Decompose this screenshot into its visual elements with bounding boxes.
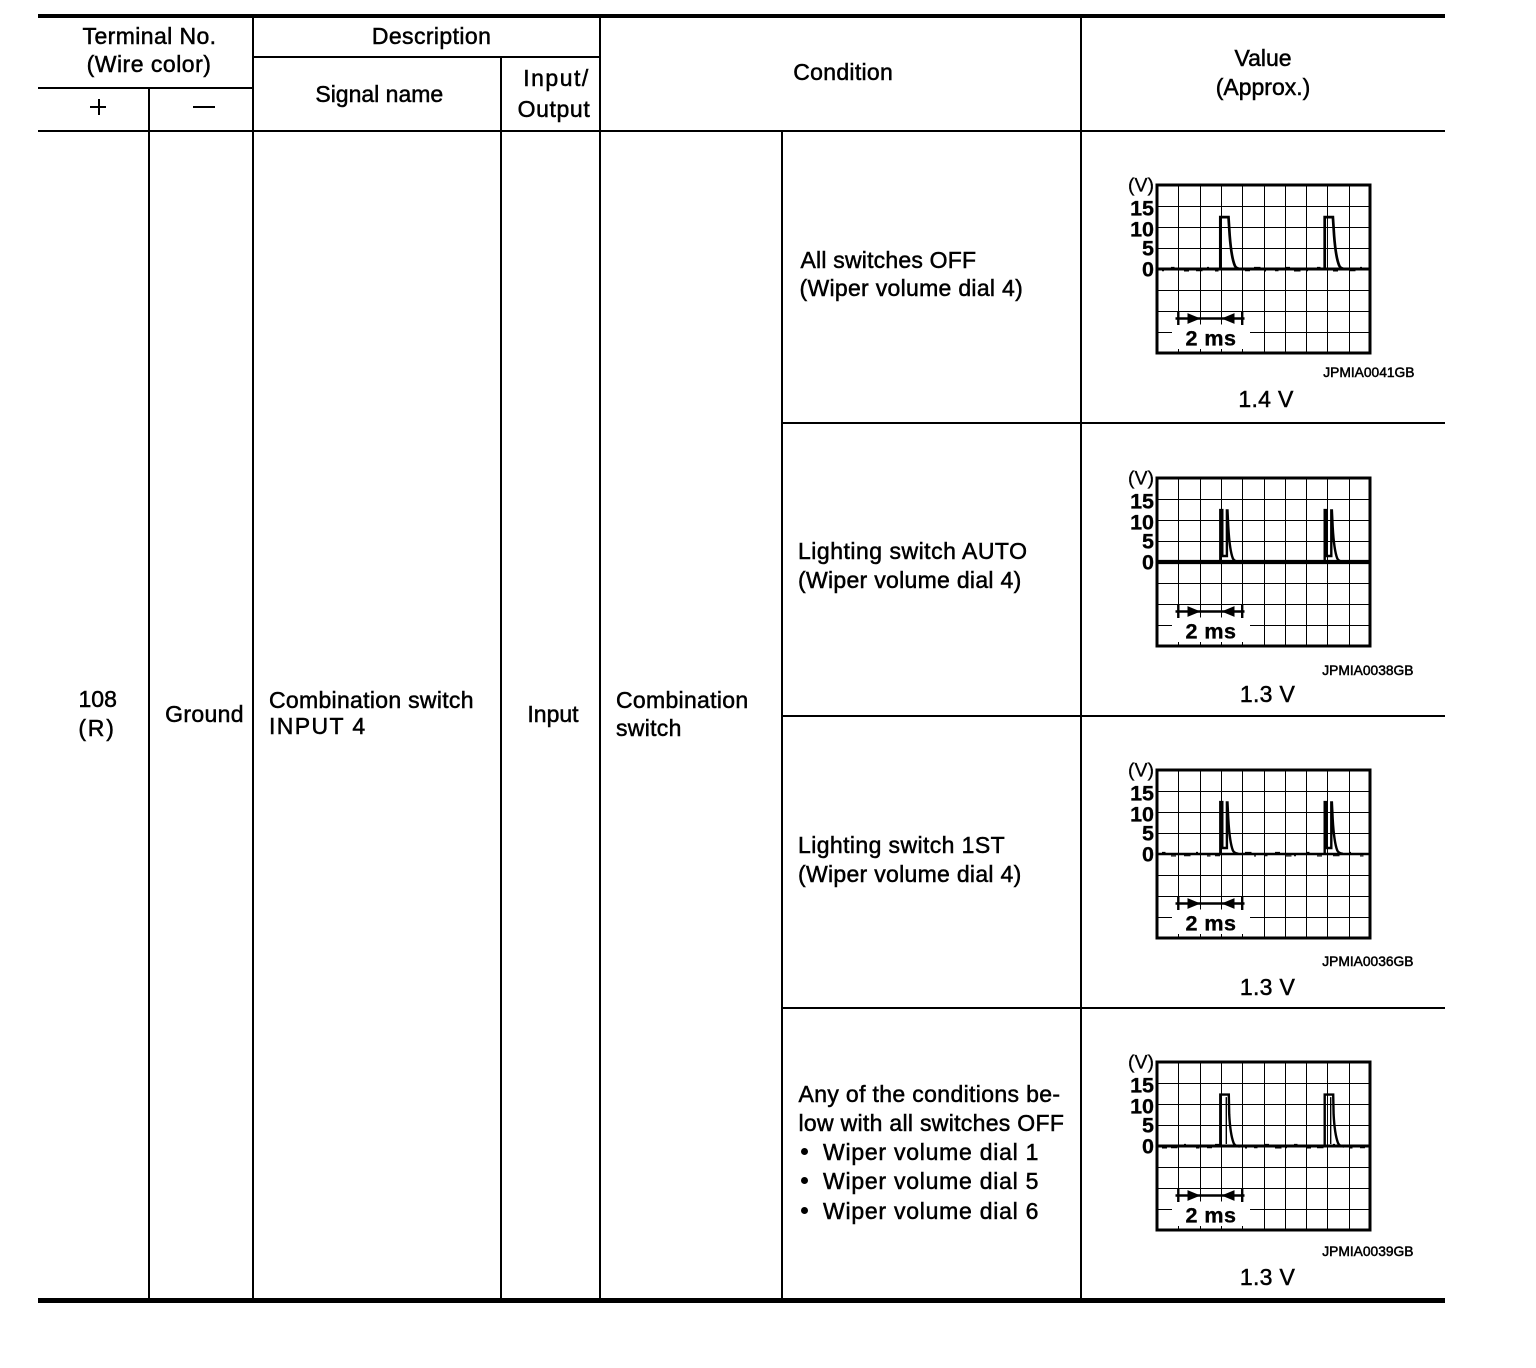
svg-text:0: 0 bbox=[1142, 843, 1154, 867]
svg-text:(V): (V) bbox=[1128, 760, 1154, 782]
svg-text:(V): (V) bbox=[1128, 1052, 1154, 1074]
svg-text:(V): (V) bbox=[1128, 468, 1154, 490]
svg-text:2 ms: 2 ms bbox=[1185, 620, 1236, 644]
svg-text:2 ms: 2 ms bbox=[1185, 912, 1236, 936]
svg-text:2 ms: 2 ms bbox=[1185, 1204, 1236, 1228]
svg-text:(V): (V) bbox=[1128, 175, 1154, 197]
svg-text:0: 0 bbox=[1142, 551, 1154, 575]
svg-text:0: 0 bbox=[1142, 258, 1154, 282]
svg-text:2 ms: 2 ms bbox=[1185, 327, 1236, 351]
svg-text:0: 0 bbox=[1142, 1135, 1154, 1159]
